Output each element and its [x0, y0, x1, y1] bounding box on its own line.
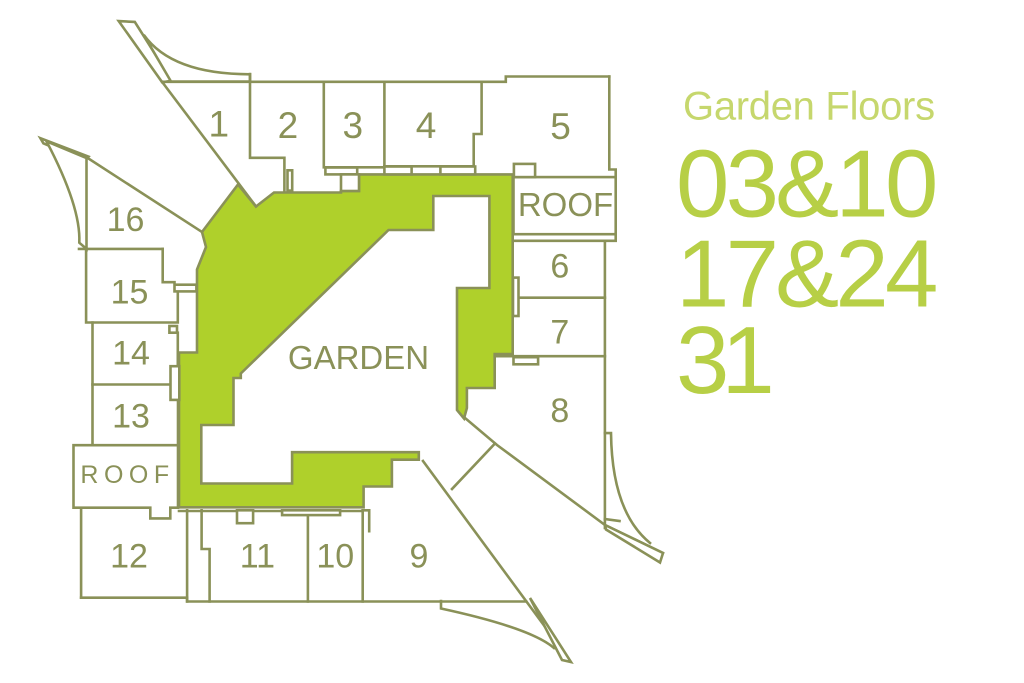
- svg-text:4: 4: [416, 105, 437, 146]
- svg-text:9: 9: [410, 538, 429, 576]
- svg-text:13: 13: [112, 397, 150, 435]
- svg-text:8: 8: [550, 392, 569, 430]
- svg-text:16: 16: [107, 201, 145, 239]
- svg-text:7: 7: [550, 313, 569, 351]
- svg-text:ROOF: ROOF: [80, 461, 174, 489]
- svg-text:15: 15: [111, 274, 149, 312]
- svg-text:31: 31: [676, 307, 770, 414]
- svg-text:14: 14: [112, 335, 150, 373]
- svg-text:GARDEN: GARDEN: [288, 339, 429, 376]
- svg-text:10: 10: [316, 538, 354, 576]
- svg-text:2: 2: [278, 105, 299, 146]
- svg-text:6: 6: [550, 248, 569, 286]
- svg-text:ROOF: ROOF: [518, 186, 613, 223]
- svg-text:11: 11: [240, 538, 275, 576]
- svg-text:1: 1: [209, 104, 230, 145]
- svg-text:12: 12: [110, 538, 148, 576]
- svg-text:3: 3: [343, 105, 364, 146]
- svg-text:5: 5: [550, 106, 571, 147]
- svg-text:Garden Floors: Garden Floors: [683, 85, 935, 129]
